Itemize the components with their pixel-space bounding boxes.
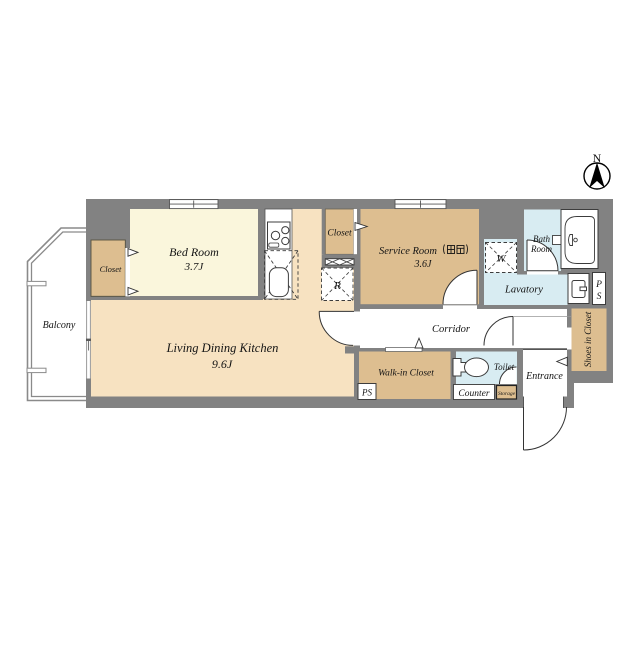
svg-text:Living Dining Kitchen: Living Dining Kitchen — [166, 341, 279, 355]
svg-text:Walk-in Closet: Walk-in Closet — [378, 369, 434, 379]
svg-text:Balcony: Balcony — [43, 320, 76, 331]
svg-text:Counter: Counter — [458, 389, 489, 399]
svg-text:3.6J: 3.6J — [414, 259, 433, 270]
svg-text:Bath: Bath — [533, 234, 550, 244]
svg-text:Shoes in Closet: Shoes in Closet — [583, 311, 593, 367]
svg-text:W: W — [496, 253, 506, 265]
svg-text:Bed Room: Bed Room — [169, 245, 219, 259]
svg-text:Closet: Closet — [327, 229, 352, 239]
svg-text:Service Room: Service Room — [379, 246, 437, 257]
svg-text:Storage: Storage — [498, 391, 516, 397]
svg-text:P: P — [595, 280, 602, 290]
svg-text:R: R — [333, 280, 341, 292]
svg-text:PS: PS — [361, 388, 372, 398]
svg-text:Lavatory: Lavatory — [504, 285, 543, 296]
svg-text:Toilet: Toilet — [494, 362, 515, 372]
svg-text:3.7J: 3.7J — [184, 261, 205, 273]
svg-text:Corridor: Corridor — [432, 324, 471, 335]
svg-text:N: N — [593, 151, 602, 165]
svg-text:9.6J: 9.6J — [212, 357, 233, 371]
svg-text:Room: Room — [530, 244, 552, 254]
svg-text:Entrance: Entrance — [525, 371, 563, 382]
svg-text:S: S — [597, 292, 602, 302]
svg-text:Closet: Closet — [100, 264, 122, 274]
